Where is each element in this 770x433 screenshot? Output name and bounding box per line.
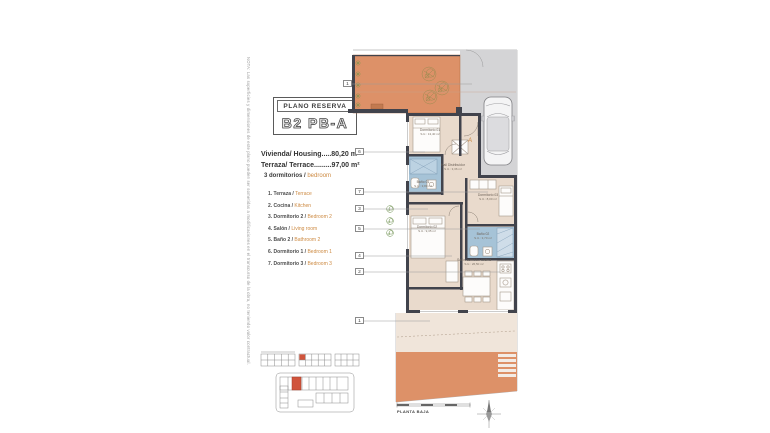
plan-marker-4: 4: [355, 252, 364, 259]
room-area-salon: S.U.: 26,50 m²: [464, 262, 483, 266]
toilet2-icon: [470, 246, 478, 256]
plan-marker-3: 3: [355, 205, 364, 212]
legend-es: 6. Dormitorio 1 /: [268, 249, 306, 255]
legend-en: Living room: [291, 226, 317, 232]
plan-sheet: NOTA: Las superficies y dimensiones de e…: [0, 0, 770, 433]
highlighted-unit-elevation: [299, 354, 305, 360]
vertical-disclaimer-note: NOTA: Las superficies y dimensiones de e…: [246, 57, 251, 387]
floor-plan: Dormitorio 01 S.U.: 13,40 m² Baño 01 S.U…: [337, 44, 543, 433]
plan-marker-1-top: 1: [343, 80, 352, 87]
bedrooms-en: bedroom: [307, 173, 331, 179]
plan-marker-5: 5: [355, 225, 364, 232]
kitchen-counter-icon: [497, 261, 514, 310]
compass-icon: [477, 400, 501, 428]
shower1-icon: [410, 159, 437, 174]
scale-bar: [397, 403, 470, 408]
plan-marker-6: 6: [355, 148, 364, 155]
bedrooms-es: 3 dormitorios /: [264, 173, 306, 179]
legend-es: 7. Dormitorio 3 /: [268, 261, 306, 267]
terrace-chip: [371, 104, 383, 109]
bedrooms-line: 3 dormitorios / bedroom: [264, 173, 331, 179]
legend-en: Bedroom 2: [307, 214, 331, 220]
shower2-icon: [497, 228, 513, 257]
legend-es: 3. Dormitorio 2 /: [268, 214, 306, 220]
legend-item: 5. Baño 2 / Bathroom 2: [268, 235, 332, 247]
terrace-lower-light: [396, 313, 517, 352]
legend-item: 6. Dormitorio 1 / Bedroom 1: [268, 247, 332, 259]
legend-item: 4. Salón / Living room: [268, 224, 332, 236]
legend-item: 2. Cocina / Kitchen: [268, 201, 332, 213]
wall-shrubs-icon: [387, 206, 394, 237]
room-area-bath1: S.U.: 3,80 m²: [414, 184, 432, 188]
legend-es: 2. Cocina /: [268, 203, 293, 209]
bed2-icon: [411, 216, 445, 258]
legend-es: 1. Terraza /: [268, 191, 294, 197]
legend-es: 4. Salón /: [268, 226, 290, 232]
legend-en: Bedroom 3: [307, 261, 331, 267]
room-area-hall: S.U.: 3,36 m²: [444, 167, 462, 171]
legend-en: Kitchen: [294, 203, 311, 209]
room-area-bath2: S.U.: 3,70 m²: [474, 236, 492, 240]
closet3-icon: [470, 180, 496, 189]
plan-marker-7: 7: [355, 188, 364, 195]
legend-en: Bathroom 2: [294, 237, 320, 243]
sink2-icon: [483, 247, 492, 256]
legend-en: Terrace: [295, 191, 312, 197]
dining-table-icon: [463, 271, 490, 302]
room-area-dorm3: S.U.: 8,00 m²: [479, 197, 497, 201]
dresser2-icon: [446, 261, 458, 282]
entrance-label: A: [467, 138, 472, 144]
plan-marker-2: 2: [355, 268, 364, 275]
legend-item: 1. Terraza / Terrace: [268, 189, 332, 201]
room-area-dorm1: S.U.: 13,40 m²: [420, 132, 439, 136]
legend-en: Bedroom 1: [307, 249, 331, 255]
plan-marker-1-bottom: 1: [355, 317, 364, 324]
legend-item: 3. Dormitorio 2 / Bedroom 2: [268, 212, 332, 224]
bed3-icon: [499, 186, 513, 216]
room-legend: 1. Terraza / Terrace 2. Cocina / Kitchen…: [268, 189, 332, 270]
room-area-dorm2: S.U.: 9,35 m²: [418, 229, 436, 233]
highlighted-unit-siteplan: [292, 377, 301, 390]
legend-es: 5. Baño 2 /: [268, 237, 293, 243]
legend-item: 7. Dormitorio 3 / Bedroom 3: [268, 259, 332, 271]
car-icon: [482, 97, 515, 165]
planta-baja-label: PLANTA BAJA: [397, 409, 429, 414]
